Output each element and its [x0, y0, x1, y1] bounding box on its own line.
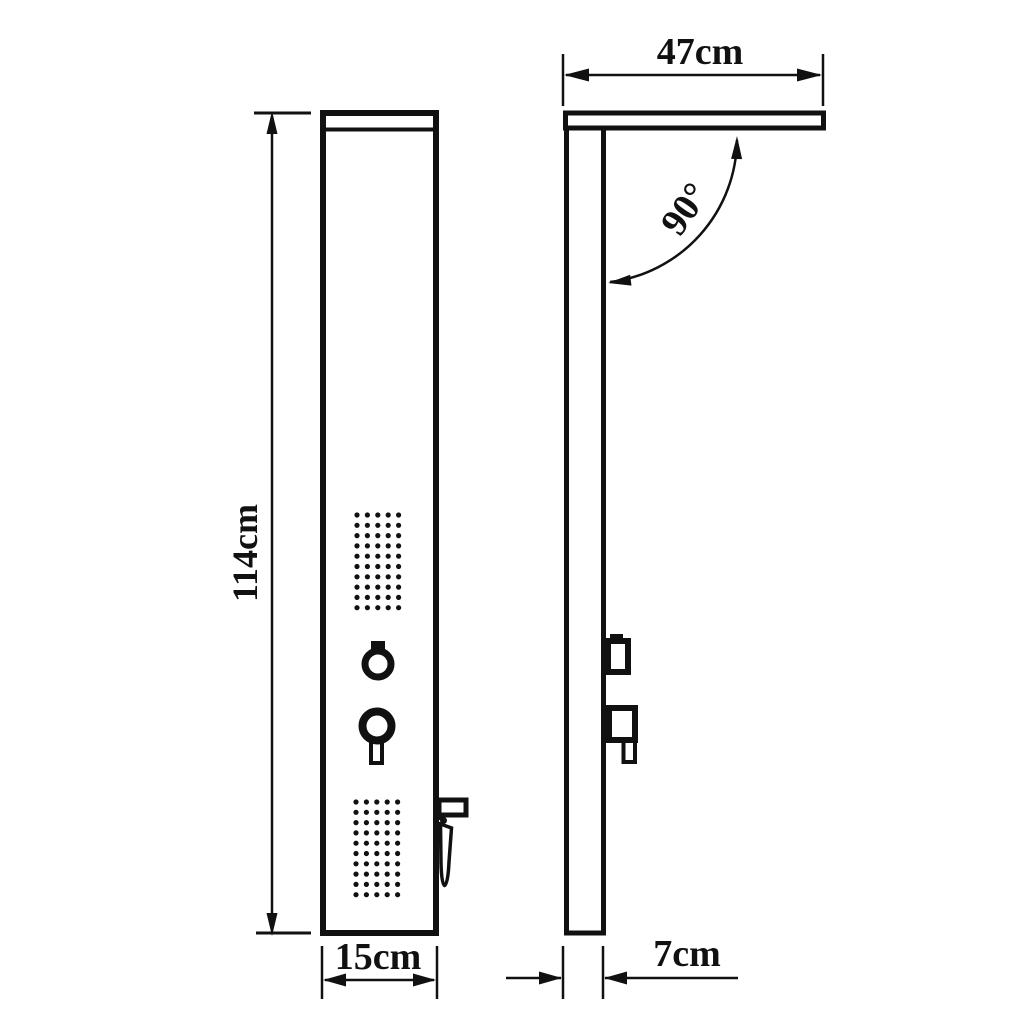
jet-dot — [395, 882, 400, 887]
jet-dot — [374, 799, 379, 804]
jet-dot — [365, 605, 370, 610]
arm-arrow-right-icon — [797, 69, 822, 82]
jet-dot — [354, 564, 359, 569]
jet-dot — [375, 585, 380, 590]
width-dimension: 15cm — [322, 936, 437, 999]
jet-dot — [374, 830, 379, 835]
jet-dot — [365, 595, 370, 600]
jet-dot — [353, 799, 358, 804]
jet-dot — [375, 533, 380, 538]
jet-dot — [364, 810, 369, 815]
jet-dot — [374, 861, 379, 866]
jet-dot — [396, 585, 401, 590]
jet-dot — [365, 533, 370, 538]
jet-dot — [364, 799, 369, 804]
jet-dot — [365, 564, 370, 569]
jet-dot — [395, 810, 400, 815]
jet-dot — [353, 820, 358, 825]
jet-dot — [365, 585, 370, 590]
angle-dimension: 90° — [608, 136, 742, 286]
jet-dot — [396, 605, 401, 610]
jet-dot — [395, 851, 400, 856]
jet-dot — [365, 523, 370, 528]
jet-dot — [365, 574, 370, 579]
side-lower-knob — [609, 708, 635, 740]
depth-label: 7cm — [653, 933, 721, 975]
jet-dot — [354, 554, 359, 559]
jet-dot — [385, 810, 390, 815]
arm-dimension: 47cm — [563, 31, 823, 106]
jet-dot — [353, 830, 358, 835]
jet-dot — [364, 830, 369, 835]
jet-dot — [365, 554, 370, 559]
jet-dot — [364, 841, 369, 846]
side-lower-knob-handle — [624, 740, 636, 762]
jet-dot — [374, 892, 379, 897]
depth-arrow-left-icon — [539, 972, 562, 985]
jet-dot — [353, 892, 358, 897]
jet-dot — [385, 872, 390, 877]
height-label: 114cm — [225, 504, 265, 602]
jet-dot — [354, 523, 359, 528]
jet-dot — [375, 543, 380, 548]
jet-dot — [353, 872, 358, 877]
jet-dot — [375, 554, 380, 559]
jet-dot — [375, 605, 380, 610]
jet-dot — [395, 872, 400, 877]
jet-dot — [385, 799, 390, 804]
angle-label: 90° — [653, 175, 718, 243]
jet-dot — [396, 554, 401, 559]
jet-dot — [396, 574, 401, 579]
spout-assembly — [435, 798, 466, 886]
jet-dot — [386, 523, 391, 528]
jet-dot — [353, 841, 358, 846]
jet-dot — [385, 820, 390, 825]
jet-dot — [365, 512, 370, 517]
jet-dot — [374, 841, 379, 846]
jet-dot — [386, 533, 391, 538]
jet-dot — [354, 595, 359, 600]
jet-dot — [385, 882, 390, 887]
jet-dot — [386, 554, 391, 559]
jet-dot — [395, 892, 400, 897]
jet-dot — [396, 523, 401, 528]
jet-dot — [353, 810, 358, 815]
jet-dot — [374, 851, 379, 856]
jet-dot — [386, 605, 391, 610]
jet-dot — [386, 512, 391, 517]
jet-dot — [354, 543, 359, 548]
jet-dot — [354, 512, 359, 517]
jet-dot — [364, 872, 369, 877]
jet-dot — [396, 543, 401, 548]
jet-dot — [395, 799, 400, 804]
jet-dot — [385, 892, 390, 897]
jet-dot — [354, 585, 359, 590]
width-label: 15cm — [335, 936, 422, 978]
spout-lever — [441, 824, 452, 886]
jet-dot — [375, 574, 380, 579]
jet-dot — [385, 841, 390, 846]
front-view — [320, 113, 466, 933]
jet-dot — [375, 564, 380, 569]
jet-dot — [365, 543, 370, 548]
jet-dot — [374, 872, 379, 877]
jet-dot — [385, 830, 390, 835]
jet-dot — [386, 585, 391, 590]
jet-dot — [386, 543, 391, 548]
angle-arrow-lower-icon — [608, 275, 632, 286]
jet-dot — [395, 841, 400, 846]
angle-arrow-upper-icon — [731, 136, 742, 159]
jet-dot — [395, 830, 400, 835]
jet-dot — [386, 574, 391, 579]
jet-dot — [386, 564, 391, 569]
jet-dot — [353, 851, 358, 856]
jet-dot — [386, 595, 391, 600]
lower-knob-ring — [363, 712, 392, 741]
jet-dot — [385, 851, 390, 856]
side-arm — [566, 113, 824, 128]
jet-dot — [364, 820, 369, 825]
jet-dot — [395, 861, 400, 866]
jet-dot — [396, 564, 401, 569]
upper-knob-ring — [365, 651, 391, 677]
jet-dot — [396, 512, 401, 517]
side-view — [566, 113, 824, 933]
jet-dot — [353, 882, 358, 887]
spout-body — [439, 800, 466, 815]
jet-dot — [354, 605, 359, 610]
front-panel-body — [323, 113, 436, 933]
side-panel-body — [567, 115, 604, 933]
jet-dot — [374, 820, 379, 825]
jet-dot — [364, 892, 369, 897]
jet-dot — [375, 523, 380, 528]
jet-dot — [396, 533, 401, 538]
jet-dot — [375, 595, 380, 600]
depth-dimension: 7cm — [506, 933, 738, 999]
jet-dot — [353, 861, 358, 866]
jet-dot — [364, 851, 369, 856]
jet-dot — [354, 533, 359, 538]
depth-arrow-right-icon — [604, 972, 627, 985]
arm-label: 47cm — [657, 31, 744, 73]
jet-dot — [375, 512, 380, 517]
jet-dot — [364, 861, 369, 866]
height-dimension: 114cm — [225, 111, 311, 936]
technical-drawing: 114cm 15cm 90° 47cm — [0, 0, 1024, 1024]
jet-dot — [354, 574, 359, 579]
jet-dot — [364, 882, 369, 887]
side-upper-knob — [608, 641, 628, 672]
jet-dot — [396, 595, 401, 600]
arm-arrow-left-icon — [564, 69, 589, 82]
jet-dot — [395, 820, 400, 825]
jet-dot — [385, 861, 390, 866]
jet-dot — [374, 882, 379, 887]
jet-dot — [374, 810, 379, 815]
